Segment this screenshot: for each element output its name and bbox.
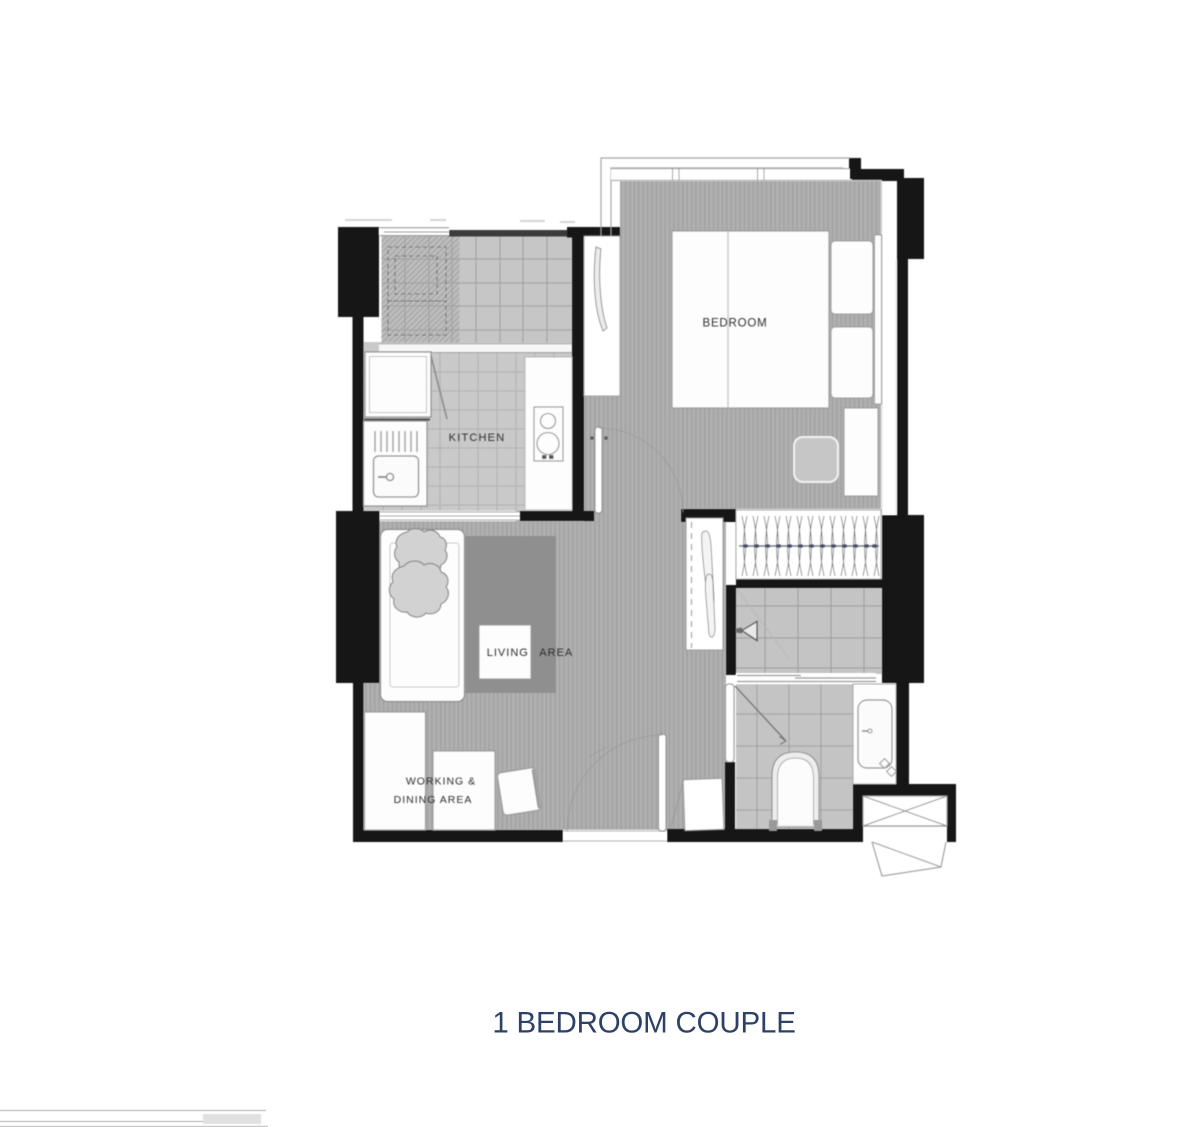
svg-text:DINING AREA: DINING AREA <box>394 794 473 806</box>
svg-text:1 BEDROOM COUPLE: 1 BEDROOM COUPLE <box>492 1007 795 1040</box>
svg-text:WORKING &: WORKING & <box>406 776 476 788</box>
svg-text:BEDROOM: BEDROOM <box>702 318 767 330</box>
svg-text:LIVING AREA: LIVING AREA <box>487 647 573 659</box>
svg-text:KITCHEN: KITCHEN <box>449 432 506 444</box>
